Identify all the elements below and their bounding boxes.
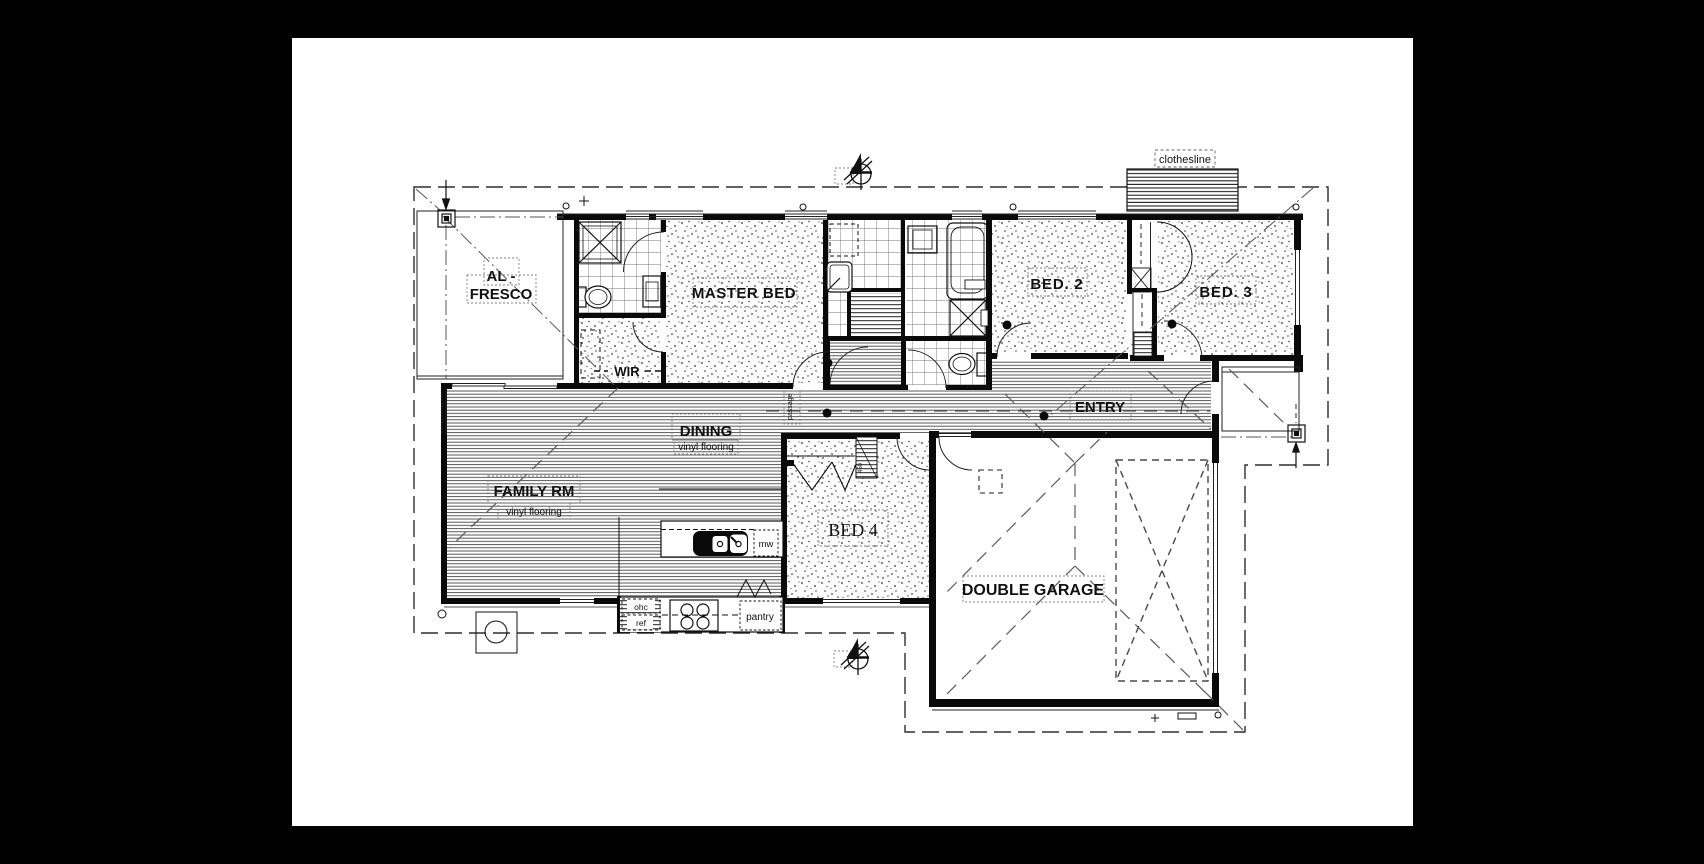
svg-text:ENTRY: ENTRY <box>1075 399 1125 416</box>
svg-text:AL -: AL - <box>487 268 516 285</box>
svg-text:mw: mw <box>759 539 774 550</box>
svg-text:DOUBLE GARAGE: DOUBLE GARAGE <box>962 582 1105 599</box>
svg-text:passage: passage <box>787 393 794 420</box>
svg-text:clothesline: clothesline <box>1159 154 1211 166</box>
svg-text:vinyl flooring: vinyl flooring <box>506 507 562 518</box>
svg-text:DINING: DINING <box>680 423 733 440</box>
svg-text:BED. 3: BED. 3 <box>1199 284 1252 301</box>
svg-text:BED. 2: BED. 2 <box>1030 276 1083 293</box>
svg-text:ohc: ohc <box>634 602 648 612</box>
svg-text:vinyl flooring: vinyl flooring <box>678 442 734 453</box>
svg-text:WIR: WIR <box>614 364 640 379</box>
svg-text:FAMILY RM: FAMILY RM <box>494 483 575 500</box>
svg-text:MASTER BED: MASTER BED <box>692 285 796 302</box>
svg-text:BED 4: BED 4 <box>828 520 878 540</box>
svg-text:450: 450 <box>858 462 864 473</box>
svg-text:FRESCO: FRESCO <box>470 286 533 303</box>
svg-text:pantry: pantry <box>746 612 774 623</box>
svg-text:ref: ref <box>636 618 647 628</box>
